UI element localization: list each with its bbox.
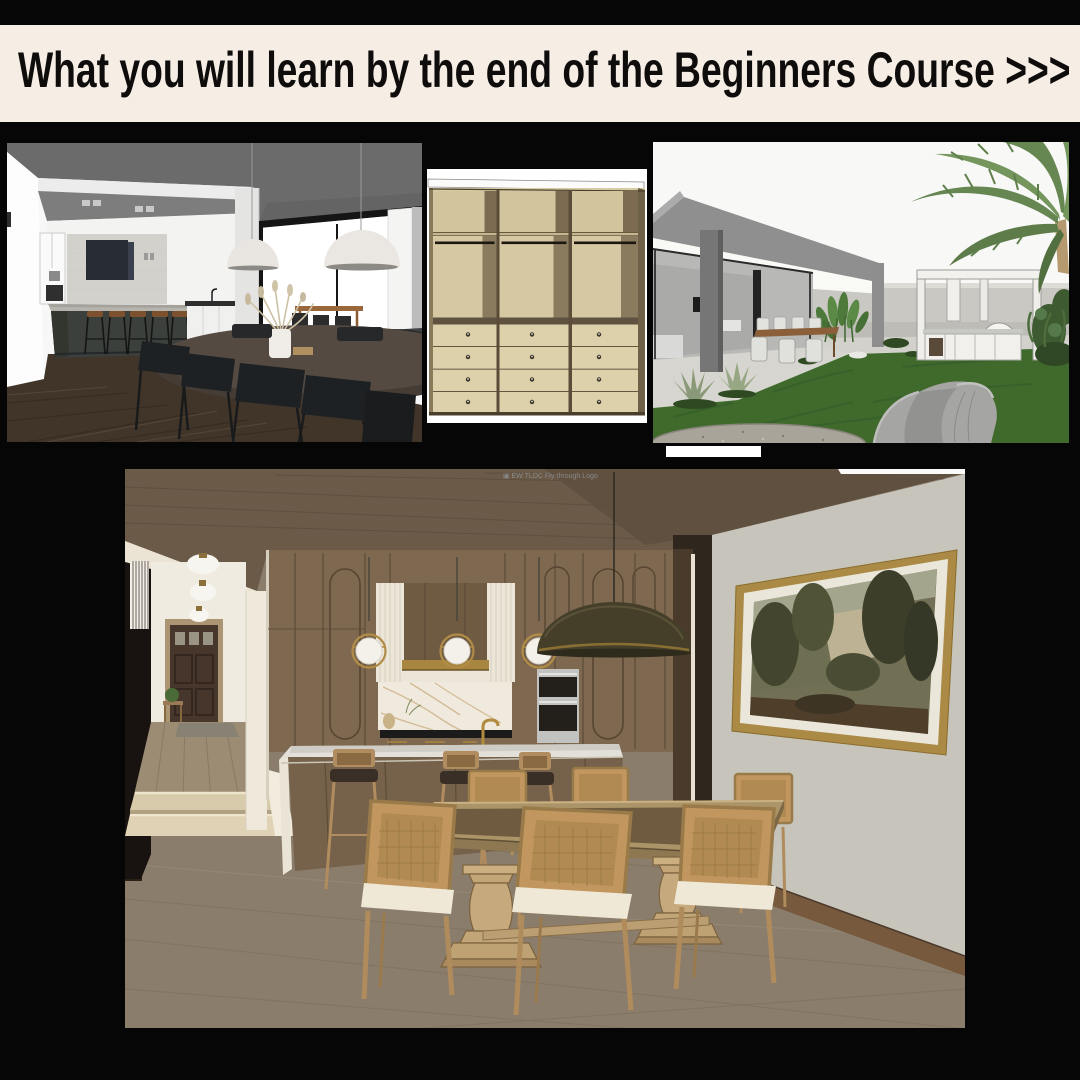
svg-text:▣ EW TLDC Fly-through Logo: ▣ EW TLDC Fly-through Logo bbox=[503, 473, 598, 480]
